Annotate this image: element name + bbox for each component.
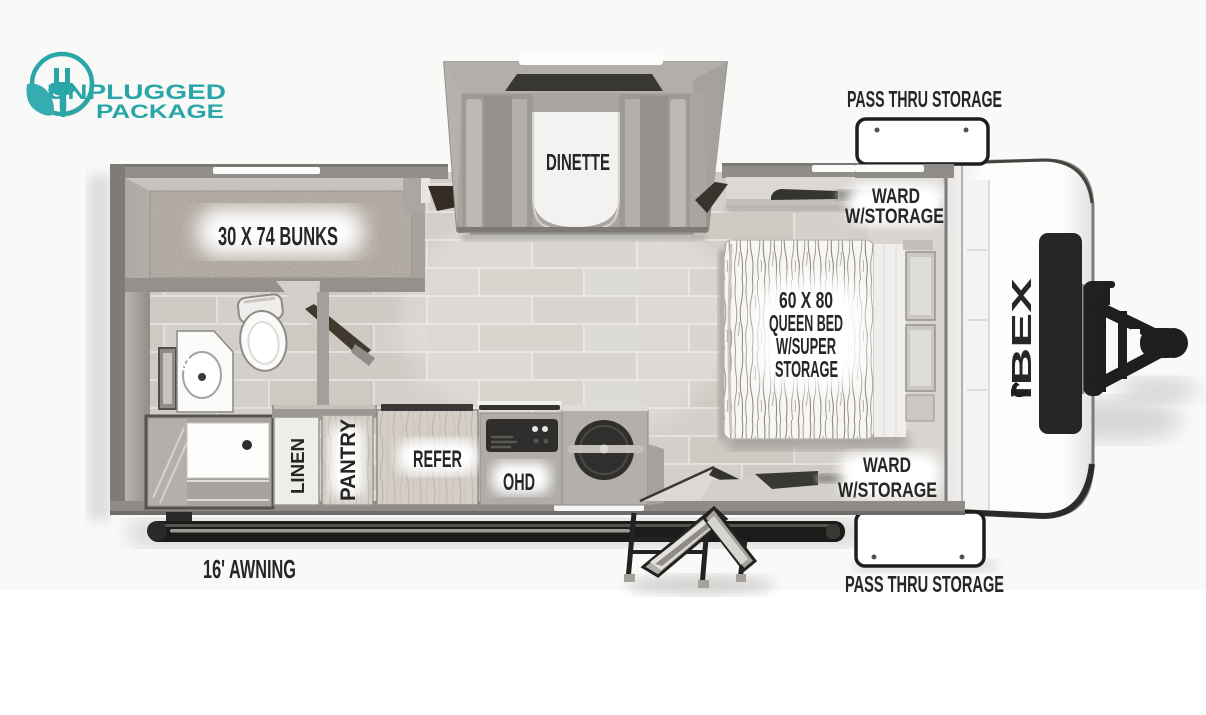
svg-text:PANTRY: PANTRY — [337, 419, 360, 501]
svg-text:OHD: OHD — [503, 469, 535, 496]
svg-text:PASS THRU STORAGE: PASS THRU STORAGE — [847, 86, 1002, 112]
svg-text:STORAGE: STORAGE — [775, 356, 838, 382]
svg-text:30 X 74 BUNKS: 30 X 74 BUNKS — [218, 221, 338, 251]
svg-text:WARD: WARD — [863, 454, 911, 477]
svg-text:W/STORAGE: W/STORAGE — [845, 205, 944, 228]
svg-text:DINETTE: DINETTE — [546, 149, 610, 175]
svg-text:LINEN: LINEN — [288, 438, 308, 494]
svg-text:iBEX: iBEX — [1006, 277, 1037, 400]
svg-text:PASS THRU STORAGE: PASS THRU STORAGE — [845, 571, 1004, 597]
svg-text:W/STORAGE: W/STORAGE — [838, 479, 937, 502]
svg-text:16' AWNING: 16' AWNING — [203, 554, 296, 584]
svg-text:REFER: REFER — [413, 446, 462, 473]
svg-text:UNPLUGGED: UNPLUGGED — [47, 81, 226, 104]
svg-text:PACKAGE: PACKAGE — [96, 102, 224, 123]
